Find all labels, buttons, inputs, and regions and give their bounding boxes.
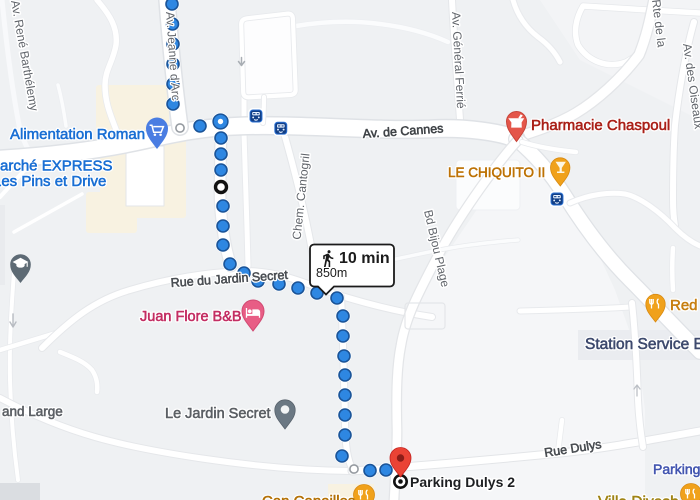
svg-text:Station Service En: Station Service En	[585, 336, 700, 353]
svg-text:Villa Divesh: Villa Divesh	[598, 494, 679, 500]
svg-text:arché EXPRESS: arché EXPRESS	[0, 158, 113, 175]
svg-text:Le Jardin Secret: Le Jardin Secret	[165, 406, 271, 422]
svg-text:10 min: 10 min	[339, 250, 390, 267]
svg-text:Alimentation Roman: Alimentation Roman	[10, 126, 145, 143]
svg-text:Red T: Red T	[670, 297, 700, 314]
svg-text:Can Canailles: Can Canailles	[262, 493, 355, 500]
svg-text:Parking Dulys 2: Parking Dulys 2	[410, 474, 515, 490]
svg-text:Les Pins et Drive: Les Pins et Drive	[0, 173, 106, 190]
svg-text:Juan Flore B&B: Juan Flore B&B	[140, 309, 242, 325]
svg-text:LE CHIQUITO II: LE CHIQUITO II	[448, 165, 545, 180]
svg-text:Parking: Parking	[653, 461, 700, 477]
svg-text:and Large: and Large	[2, 404, 63, 419]
svg-text:Pharmacie Chaspoul: Pharmacie Chaspoul	[531, 117, 670, 134]
svg-text:850m: 850m	[316, 266, 347, 280]
